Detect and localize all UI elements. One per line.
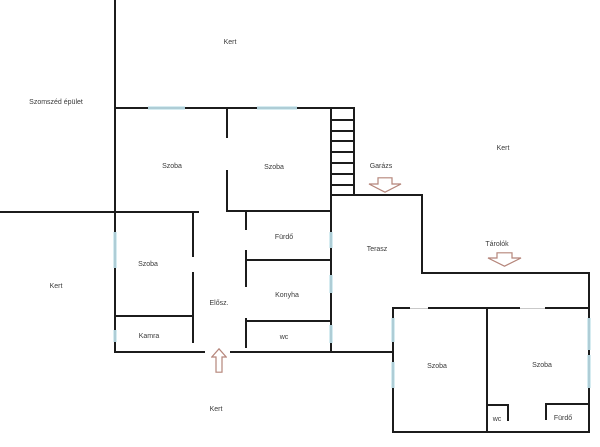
window-west-kamra xyxy=(113,330,117,342)
wall-bbuilding-bottom xyxy=(393,431,590,433)
wall-terasz-east xyxy=(421,194,423,274)
stair-rung xyxy=(331,184,355,186)
wall-south-right xyxy=(230,351,394,353)
wall-east-boundary xyxy=(588,272,590,433)
room-label-furdo-bottom: Fürdő xyxy=(554,415,572,423)
room-label-kamra: Kamra xyxy=(139,333,160,341)
area-label-szomszed-epulet: Szomszéd épület xyxy=(29,99,83,107)
room-label-szoba-middle: Szoba xyxy=(138,261,158,269)
wall-hall-east-b xyxy=(245,250,247,287)
stair-rung xyxy=(331,119,355,121)
wall-bbuilding-top-3 xyxy=(545,307,590,309)
room-label-szoba-top-right: Szoba xyxy=(264,164,284,172)
stair-rung xyxy=(331,151,355,153)
wall-east-house xyxy=(330,107,332,353)
wall-kamra-top xyxy=(115,315,194,317)
window-konyha xyxy=(329,275,333,293)
wall-furdo-box-top xyxy=(546,403,590,405)
wall-furdo-box-west xyxy=(545,403,547,420)
wall-bbuilding-divider xyxy=(486,307,488,433)
stair-rung xyxy=(331,162,355,164)
room-label-szoba-bottom-right: Szoba xyxy=(532,362,552,370)
room-label-furdo: Fürdő xyxy=(275,234,293,242)
area-label-garazs: Garázs xyxy=(370,163,393,171)
window-bbuilding-west-2 xyxy=(391,362,395,388)
main-entrance-arrow-icon xyxy=(211,348,227,373)
window-bbuilding-east-1 xyxy=(587,318,591,350)
floor-plan: Kert Szomszéd épület Kert Kert Kert Szob… xyxy=(0,0,600,447)
area-label-kert-top: Kert xyxy=(224,39,237,47)
wall-middle-right xyxy=(227,210,331,212)
wall-west xyxy=(114,0,116,353)
room-label-szoba-bottom-left: Szoba xyxy=(427,363,447,371)
wall-wc-box-east xyxy=(507,404,509,421)
area-label-kert-bottom: Kert xyxy=(210,406,223,414)
wall-hall-west-a xyxy=(192,211,194,257)
wall-middle-left xyxy=(0,211,199,213)
room-label-szoba-top-left: Szoba xyxy=(162,163,182,171)
stair-rail xyxy=(353,107,355,196)
wall-hall-east-c xyxy=(245,318,247,348)
window-bbuilding-east-2 xyxy=(587,355,591,388)
window-wc xyxy=(329,325,333,343)
stair-rung xyxy=(331,173,355,175)
wall-konyha-bottom xyxy=(246,320,332,322)
wall-hall-east-a xyxy=(245,211,247,230)
room-label-konyha: Konyha xyxy=(275,292,299,300)
door-bbuilding-right xyxy=(520,308,545,309)
room-label-eloszoba: Elősz. xyxy=(209,300,228,308)
area-label-tarolok: Tárolók xyxy=(485,241,508,249)
wall-hall-west-b xyxy=(192,272,194,343)
wall-furdo-bottom xyxy=(246,259,332,261)
area-label-kert-left: Kert xyxy=(50,283,63,291)
window-bbuilding-west-1 xyxy=(391,318,395,342)
wall-storage-top xyxy=(422,272,590,274)
wall-top-divider-a xyxy=(226,108,228,138)
room-label-wc: wc xyxy=(280,334,289,342)
wall-bbuilding-top-1 xyxy=(393,307,410,309)
stair-rung xyxy=(331,140,355,142)
garage-entrance-arrow-icon xyxy=(368,177,402,193)
area-label-terasz: Terasz xyxy=(367,246,388,254)
wall-top-divider-b xyxy=(226,170,228,212)
window-top-1 xyxy=(148,106,185,110)
wall-south-left xyxy=(115,351,205,353)
stair-rung xyxy=(331,107,355,109)
area-label-kert-right: Kert xyxy=(497,145,510,153)
storage-entrance-arrow-icon xyxy=(487,252,522,267)
window-west-szoba xyxy=(113,232,117,268)
window-furdo xyxy=(329,232,333,248)
wall-garage-bottom xyxy=(331,194,422,196)
wall-bbuilding-top-2 xyxy=(428,307,520,309)
door-bbuilding-left xyxy=(410,308,428,309)
wall-wc-box-top xyxy=(487,404,509,406)
stair-rung xyxy=(331,130,355,132)
window-top-2 xyxy=(257,106,297,110)
room-label-wc-bottom: wc xyxy=(493,416,502,424)
